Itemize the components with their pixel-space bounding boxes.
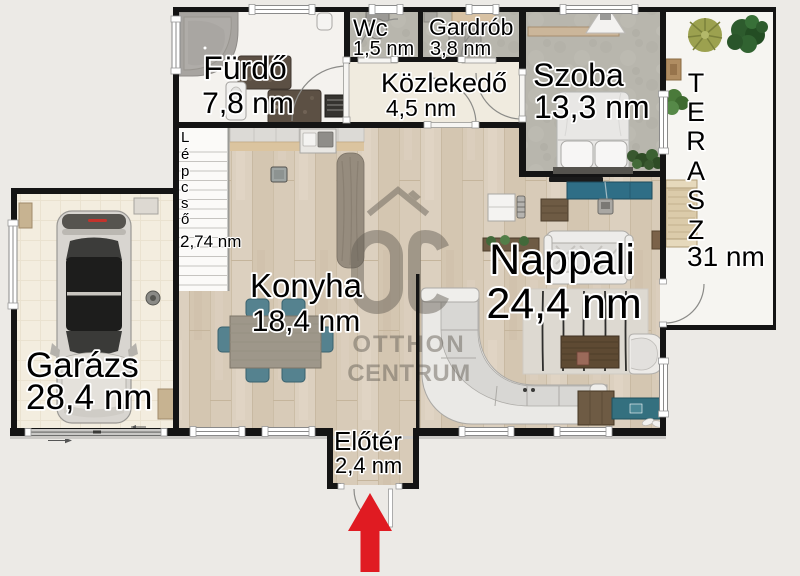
- svg-text:OTTHON: OTTHON: [352, 331, 465, 358]
- svg-text:Konyha: Konyha: [250, 267, 363, 304]
- svg-text:24,4 nm: 24,4 nm: [486, 280, 641, 328]
- svg-text:s: s: [181, 195, 189, 212]
- svg-text:Gardrób: Gardrób: [429, 14, 513, 40]
- svg-text:S: S: [687, 185, 705, 215]
- svg-text:Fürdő: Fürdő: [203, 50, 287, 86]
- svg-text:31 nm: 31 nm: [687, 241, 765, 272]
- svg-text:ő: ő: [181, 211, 189, 228]
- svg-text:7,8 nm: 7,8 nm: [202, 87, 294, 120]
- svg-text:L: L: [181, 129, 189, 146]
- svg-text:2,4 nm: 2,4 nm: [335, 453, 402, 478]
- svg-text:Szoba: Szoba: [533, 57, 624, 93]
- svg-text:3,8 nm: 3,8 nm: [430, 38, 491, 60]
- svg-text:é: é: [181, 146, 189, 163]
- svg-text:1,5 nm: 1,5 nm: [353, 38, 414, 60]
- svg-text:R: R: [686, 126, 706, 156]
- svg-text:13,3 nm: 13,3 nm: [534, 89, 650, 125]
- svg-text:28,4 nm: 28,4 nm: [26, 378, 152, 417]
- svg-text:E: E: [687, 97, 705, 127]
- svg-text:2,74 nm: 2,74 nm: [180, 232, 241, 251]
- svg-text:Nappali: Nappali: [489, 236, 635, 284]
- svg-text:Előtér: Előtér: [334, 426, 402, 456]
- svg-text:A: A: [687, 156, 705, 186]
- svg-text:Közlekedő: Közlekedő: [381, 68, 507, 98]
- svg-text:T: T: [688, 68, 705, 98]
- svg-text:CENTRUM: CENTRUM: [347, 360, 471, 387]
- svg-text:c: c: [181, 179, 189, 196]
- svg-text:4,5 nm: 4,5 nm: [386, 95, 456, 121]
- svg-text:18,4 nm: 18,4 nm: [252, 305, 360, 338]
- svg-text:p: p: [181, 163, 189, 180]
